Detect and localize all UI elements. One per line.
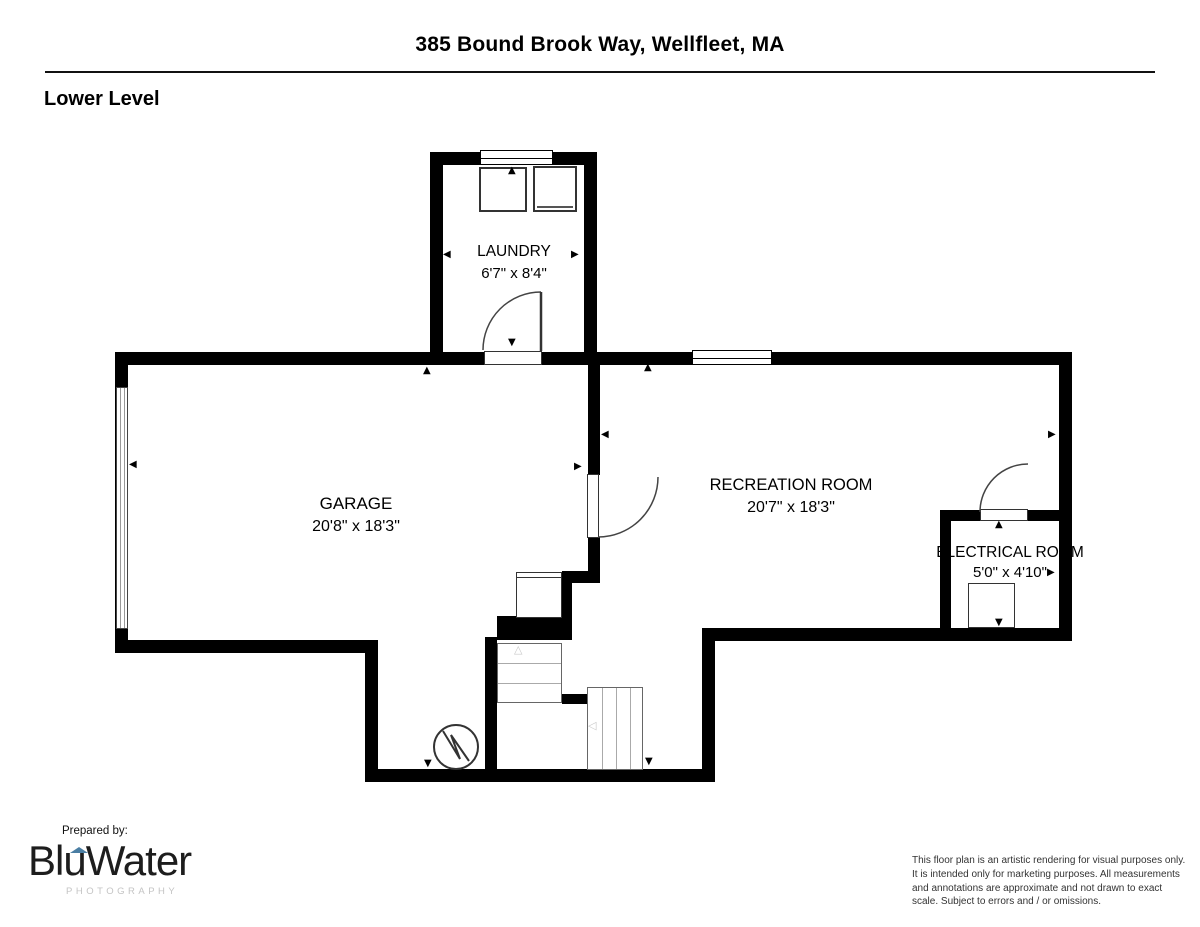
room-name: LAUNDRY [430, 243, 598, 261]
page-title: 385 Bound Brook Way, Wellfleet, MA [0, 33, 1200, 57]
staircase-upper [497, 643, 562, 703]
wall-bump-bottom [365, 769, 715, 782]
window-pane-line [481, 158, 552, 159]
dimension-arrow-down: ▼ [424, 759, 432, 769]
wall-main-right [1059, 352, 1072, 641]
wall-stairwell-left [485, 637, 497, 777]
brand-roof-icon [70, 847, 88, 853]
wall-divider-upper [588, 352, 600, 475]
dimension-arrow-right: ▶ [1048, 430, 1056, 440]
laundry-door-threshold [484, 351, 542, 365]
dimension-arrow-up: ▲ [644, 363, 652, 373]
room-dims: 5'0" x 4'10" [915, 564, 1105, 581]
room-name: GARAGE [266, 494, 446, 514]
dimension-arrow-left: ◀ [129, 460, 137, 470]
garage-door-line [124, 388, 125, 628]
garage-door [116, 387, 128, 629]
window-pane-line [693, 358, 771, 359]
electrical-door-arc [980, 464, 1028, 512]
room-label-laundry: LAUNDRY 6'7" x 8'4" [430, 243, 598, 282]
stair-tread [602, 688, 603, 769]
dimension-arrow-right: ▶ [574, 462, 582, 472]
garage-rec-door-leaf [587, 474, 599, 538]
stair-tread [498, 683, 561, 684]
brand-subtitle: PHOTOGRAPHY [66, 886, 178, 897]
plan-linework [0, 0, 1200, 927]
dimension-arrow-up: ▲ [508, 166, 516, 176]
utility-tank-icon [434, 725, 478, 769]
wall-jog-vertical [562, 571, 572, 618]
dryer-detail-line [537, 206, 573, 208]
wall-electrical-top-right [1026, 510, 1060, 521]
room-dims: 20'8" x 18'3" [266, 518, 446, 536]
electrical-panel-box [968, 583, 1015, 628]
dimension-arrow-down: ▼ [645, 757, 653, 767]
room-label-recreation: RECREATION ROOM 20'7" x 18'3" [681, 476, 901, 517]
wall-stair-band [497, 616, 572, 640]
wall-rec-bottom [702, 628, 1072, 641]
room-name: ELECTRICAL ROOM [915, 544, 1105, 562]
dimension-arrow-down: ▼ [508, 338, 516, 348]
utility-tank-zigzag [443, 731, 469, 761]
washer [479, 167, 527, 212]
recreation-window [692, 350, 772, 365]
garage-door-line [120, 388, 121, 628]
dimension-arrow-up: ▲ [423, 366, 431, 376]
prepared-by-label: Prepared by: [62, 825, 128, 837]
room-label-garage: GARAGE 20'8" x 18'3" [266, 494, 446, 536]
dimension-arrow-left: ◀ [601, 430, 609, 440]
water-heater-top-line [517, 577, 561, 578]
dryer [533, 166, 577, 212]
wall-bump-right [702, 628, 715, 782]
brand-logo-text: BluWater [28, 838, 191, 884]
stair-direction-icon: △ [514, 644, 522, 655]
room-dims: 20'7" x 18'3" [681, 499, 901, 517]
wall-main-top-c [771, 352, 1072, 365]
room-name: RECREATION ROOM [681, 476, 901, 495]
room-label-electrical: ELECTRICAL ROOM 5'0" x 4'10" [915, 544, 1105, 581]
dimension-arrow-down: ▼ [995, 618, 1003, 628]
floor-plan-page: 385 Bound Brook Way, Wellfleet, MA Lower… [0, 0, 1200, 927]
stair-tread [498, 663, 561, 664]
laundry-window [480, 150, 553, 165]
header-divider [45, 71, 1155, 73]
electrical-door-leaf [980, 509, 1028, 521]
wall-main-top-b [542, 352, 695, 365]
stair-direction-icon: ◁ [588, 720, 596, 731]
garage-rec-door-arc [598, 477, 658, 537]
wall-garage-bottom [115, 640, 377, 653]
dimension-arrow-up: ▲ [995, 520, 1003, 530]
stair-tread [630, 688, 631, 769]
level-label: Lower Level [44, 88, 160, 111]
disclaimer-text: This floor plan is an artistic rendering… [912, 854, 1188, 909]
wall-main-top-a [115, 352, 485, 365]
water-heater-box [516, 572, 562, 618]
stair-tread [616, 688, 617, 769]
room-dims: 6'7" x 8'4" [430, 265, 598, 282]
wall-bump-left [365, 640, 378, 782]
